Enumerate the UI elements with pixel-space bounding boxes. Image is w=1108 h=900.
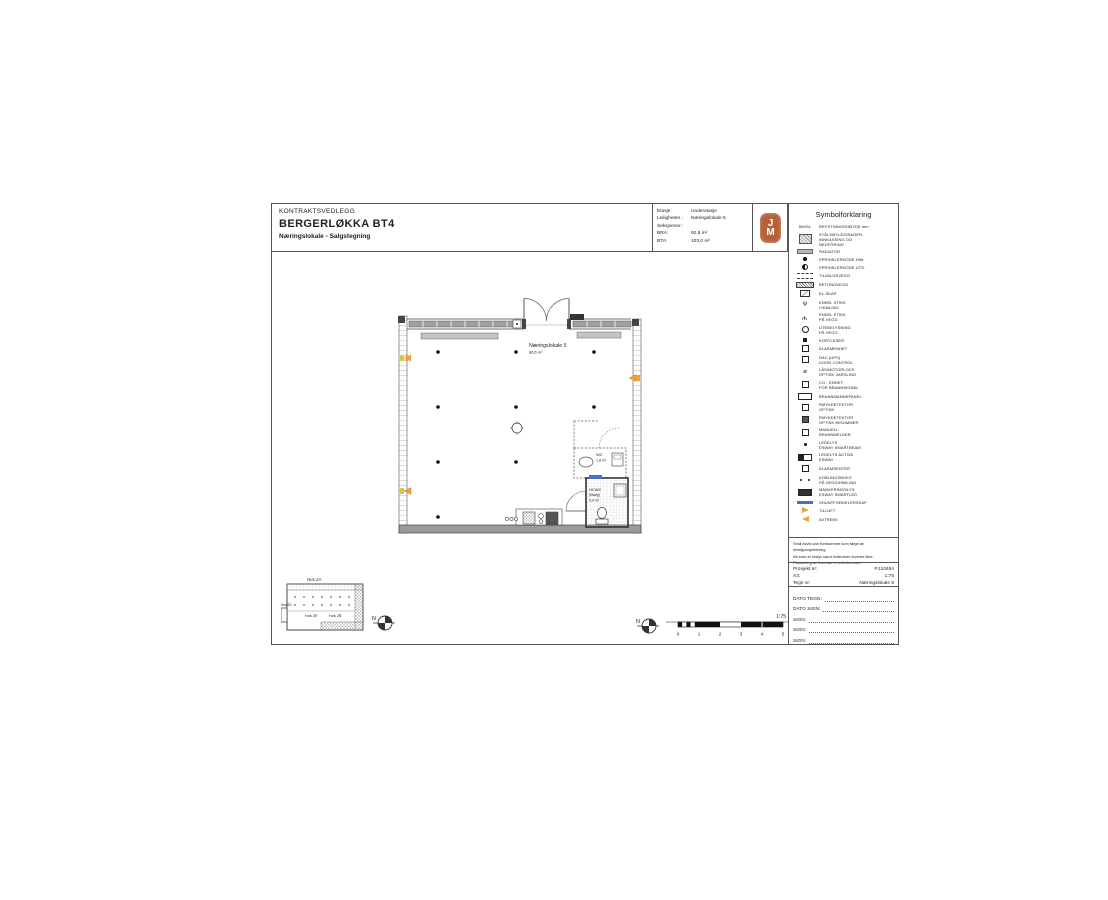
legend-item: MARKERINGSLYS ESWAY SMARTLED <box>795 487 898 497</box>
legend-item: RADIATOR <box>795 249 898 254</box>
page: KONTRAKTSVEDLEGG BERGERLØKKA BT4 Nærings… <box>0 0 1108 900</box>
legend-item: LEDELYS ACTIVA ESWAY <box>795 452 898 462</box>
info-row-etasje: Etasje: Underetasje <box>657 208 749 215</box>
legend-item: TILVALGSVEGG <box>795 273 898 279</box>
co-unit-icon <box>795 381 815 388</box>
marker-light-icon <box>795 489 815 496</box>
unit-info-block: Etasje: Underetasje Leiligheten.: Næring… <box>652 204 752 251</box>
legend-list: BH/GLBRYSTNINGSHØYDE mm STÅLSØYLE/DRAGER… <box>795 224 898 522</box>
window-band-right <box>573 321 631 327</box>
legend-item: AVTREKK <box>795 516 898 522</box>
info-value: 103,0 m² <box>691 238 710 245</box>
info-value: Næringslokale 5 <box>691 215 726 222</box>
hcwc-note-label: (tilvalg) <box>589 493 600 497</box>
legend-item: SHUNTFORDELERSKAP <box>795 500 898 505</box>
info-label: Leiligheten.: <box>657 215 691 222</box>
hcwc-name-label: HCWC <box>589 487 602 492</box>
legend-item: ALARMENHET <box>795 345 898 352</box>
legend-item: ALARMSENTER <box>795 465 898 472</box>
steel-column-icon <box>795 234 815 244</box>
scale-tick: 1 <box>698 632 701 637</box>
signature-row: DATO TEGN: <box>793 591 894 602</box>
keyplan-hus2d-label: Hus 2D <box>281 603 292 607</box>
legend-item: LEDELYS ESWAY SMARTBEAM <box>795 440 898 450</box>
junction-box-icon <box>795 479 815 481</box>
supply-air-icon <box>795 507 815 513</box>
legend-item: SPRINKLERHODE UTS. <box>795 264 898 270</box>
info-row-seksjon: Seksjonsnr.: <box>657 223 749 230</box>
keyplan-hus2a-label: Hus 2A <box>307 577 321 582</box>
legend-item: BH/GLBRYSTNINGSHØYDE mm <box>795 224 898 229</box>
drawing-subtitle: Næringslokale - Salgstegning <box>279 233 652 240</box>
sprinkler-heads <box>436 350 596 519</box>
signature-row: SIGN: <box>793 623 894 634</box>
hcwc-area-label: 5,9 m² <box>589 499 600 503</box>
right-wall <box>633 319 641 533</box>
paper-scale-row: A3: 1:75 <box>793 573 894 580</box>
corner-block-tl <box>398 316 405 323</box>
keyplan-top-band <box>287 584 363 590</box>
legend-item: MANUELL BRANNMELDER <box>795 427 898 437</box>
alarm-unit-icon <box>795 345 815 352</box>
optional-wall-icon <box>795 273 815 279</box>
signature-line <box>809 627 894 633</box>
legend-title: Symbolforklaring <box>789 210 898 219</box>
wall-symbol-dot <box>516 323 518 325</box>
fire-panel-icon <box>795 393 815 400</box>
radiator-icon <box>795 249 815 254</box>
scale-tick: 5 <box>782 632 785 637</box>
electrical-cabinet-icon <box>795 290 815 297</box>
signature-line <box>809 617 894 623</box>
info-value: 92,8 m² <box>691 230 707 237</box>
keyplan-bottom-band <box>321 622 363 630</box>
north-letter: N <box>636 619 640 625</box>
title-block: KONTRAKTSVEDLEGG BERGERLØKKA BT4 Nærings… <box>272 204 788 252</box>
note-line: Små avvik kan forekomme som følge av det… <box>793 541 894 554</box>
signature-block: DATO TEGN: DATO SIGN: SIGN: SIGN: SIGN: <box>789 586 898 644</box>
info-label: BTA: <box>657 238 691 245</box>
outdoor-light-icon <box>795 326 815 333</box>
extract-air-arrow <box>629 375 640 382</box>
keyplan-hus2e-label: Hus 2E <box>305 614 318 618</box>
legend-item: EL-SKAP <box>795 290 898 297</box>
signature-line <box>809 638 894 644</box>
ceiling-socket-icon <box>795 302 815 308</box>
wc-room: WC 1,8 m² <box>574 421 626 478</box>
legend-item: BRANNMANNSPANEL <box>795 393 898 400</box>
signature-line <box>825 596 894 602</box>
extract-air-icon <box>795 516 815 522</box>
emergency-light-icon <box>795 443 815 446</box>
scale-tick: 4 <box>761 632 764 637</box>
info-label: BRA: <box>657 230 691 237</box>
emergency-light-activa-icon <box>795 454 815 461</box>
sprinkler-wall-icon <box>795 264 815 270</box>
project-title: BERGERLØKKA BT4 <box>279 218 652 230</box>
scale-tick: 2 <box>719 632 722 637</box>
smoke-detector-buzzer-icon <box>795 416 815 423</box>
card-reader-icon <box>795 338 815 342</box>
room-area-label: 86,6 m² <box>529 350 543 355</box>
scale-bar-segments <box>678 622 783 627</box>
el-skap-box <box>570 314 584 320</box>
smoke-detector-icon <box>795 404 815 411</box>
concrete-wall-icon <box>795 282 815 288</box>
project-info-block: Prosjekt nr: P.110494 A3: 1:75 Tegn nr: … <box>789 562 898 587</box>
kitchenette <box>505 509 562 525</box>
shunt-cabinet-icon <box>795 501 815 504</box>
wc-fixture-oval <box>579 457 593 467</box>
scale-bar: 1:75 0 1 2 3 4 5 <box>664 609 790 641</box>
shunt-cabinet <box>589 475 602 479</box>
legend-item: ENKEL STIKK I HIMLING <box>795 300 898 310</box>
title-block-left: KONTRAKTSVEDLEGG BERGERLØKKA BT4 Nærings… <box>272 204 652 251</box>
legend-item: BETONGVEGG <box>795 282 898 288</box>
info-label: Seksjonsnr.: <box>657 223 691 230</box>
manual-fire-alarm-icon <box>795 429 815 436</box>
legend-item: STÅLSØYLE/DRAGER, INNKASSING OG NEDFÔRIN… <box>795 232 898 247</box>
ceiling-fixture <box>511 422 524 435</box>
north-compass: N <box>636 614 660 638</box>
legend-item: UTEBELYSNING PÅ VEGG <box>795 325 898 335</box>
wc-name-label: WC <box>596 452 603 457</box>
radiator-left <box>421 333 498 339</box>
hcwc-door-arc <box>566 491 586 511</box>
radiator-right <box>577 332 621 338</box>
legend-item: TILLUFT <box>795 507 898 513</box>
legend-item: SPRINKLERHODE HIM. <box>795 257 898 262</box>
key-plan: Hus 2A Hus 2D Hus 2E Hus 2B <box>281 574 369 638</box>
north-compass: N <box>372 611 396 635</box>
scale-tick: 3 <box>740 632 743 637</box>
drawing-sheet: KONTRAKTSVEDLEGG BERGERLØKKA BT4 Nærings… <box>271 203 899 645</box>
legend-panel: Symbolforklaring BH/GLBRYSTNINGSHØYDE mm… <box>788 204 898 644</box>
scale-ratio-label: 1:75 <box>776 614 786 620</box>
left-wall <box>399 316 407 533</box>
legend-item: LÅS/MOTORLOCK OPTISK VARSLING <box>795 367 898 377</box>
hcwc-room: HCWC (tilvalg) 5,9 m² <box>566 475 628 527</box>
logo-cell: J M <box>752 204 788 251</box>
dac-icon <box>795 356 815 363</box>
alarm-central-icon <box>795 465 815 472</box>
legend-item: KORTLESER <box>795 338 898 343</box>
legend-item: DAC (UPS) DOOR CONTROL <box>795 355 898 365</box>
legend-item: KOBLINGSBOKS PÅ VEGG/HIMLING <box>795 475 898 485</box>
document-type: KONTRAKTSVEDLEGG <box>279 208 652 215</box>
bh-gl-label: BH/GL <box>795 224 815 229</box>
legend-item: CO - ENHET FOR BRANNSIGNAL <box>795 380 898 390</box>
floor-plan: Næringslokale 5 86,6 m² WC 1,8 m² H <box>396 295 644 539</box>
signature-line <box>823 606 894 612</box>
signature-row: DATO SIGN: <box>793 602 894 613</box>
info-row-bra: BRA: 92,8 m² <box>657 230 749 237</box>
legend-item: RØYKDETEKTOR OPTISK M/SUMMER <box>795 415 898 425</box>
info-row-leilighet: Leiligheten.: Næringslokale 5 <box>657 215 749 222</box>
signature-row: SIGN: <box>793 633 894 644</box>
wall-socket-icon <box>795 314 815 320</box>
keyplan-left-annex <box>281 608 287 622</box>
keyplan-hus2b-label: Hus 2B <box>329 614 342 618</box>
jm-logo: J M <box>760 213 781 243</box>
signature-row: SIGN: <box>793 612 894 623</box>
logo-letter-m: M <box>766 228 774 237</box>
info-row-bta: BTA: 103,0 m² <box>657 238 749 245</box>
info-value: Underetasje <box>691 208 717 215</box>
motor-lock-icon <box>795 369 815 375</box>
legend-item: ENKEL STIKK PÅ VEGG <box>795 312 898 322</box>
wc-door-arc <box>599 428 619 448</box>
legend-item: RØYKDETEKTOR OPTISK <box>795 402 898 412</box>
info-label: Etasje: <box>657 208 691 215</box>
corner-block-tr <box>632 319 639 326</box>
window-band-left <box>409 321 519 327</box>
scale-tick: 0 <box>677 632 680 637</box>
wc-area-label: 1,8 m² <box>596 459 607 463</box>
project-number-row: Prosjekt nr: P.110494 <box>793 566 894 573</box>
north-letter: N <box>372 616 376 622</box>
room-name-label: Næringslokale 5 <box>529 343 567 349</box>
sprinkler-ceiling-icon <box>795 257 815 261</box>
double-door-arcs <box>524 299 569 322</box>
